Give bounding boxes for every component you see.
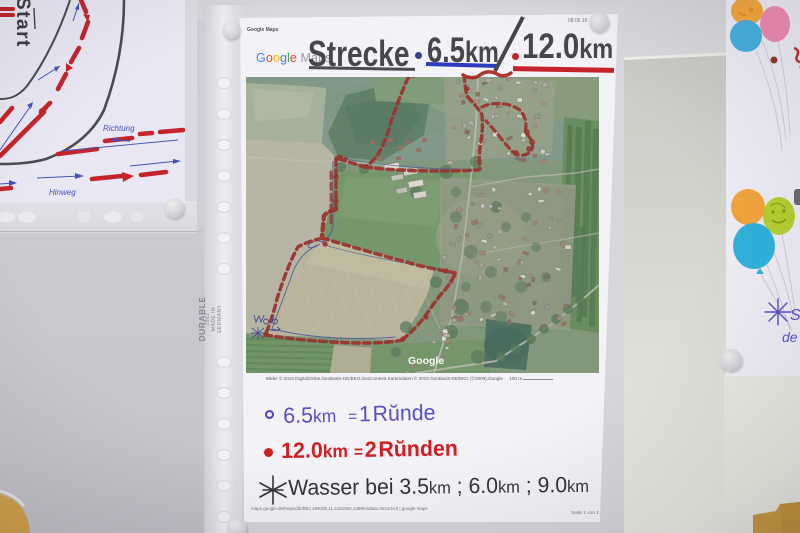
svg-text:Richtung: Richtung (103, 124, 135, 133)
svg-text:Google: Google (408, 355, 444, 367)
svg-text:S: S (790, 307, 800, 324)
svg-text:Start: Start (12, 0, 33, 48)
svg-text:de: de (782, 329, 798, 345)
svg-text:Hinweg: Hinweg (49, 188, 76, 197)
